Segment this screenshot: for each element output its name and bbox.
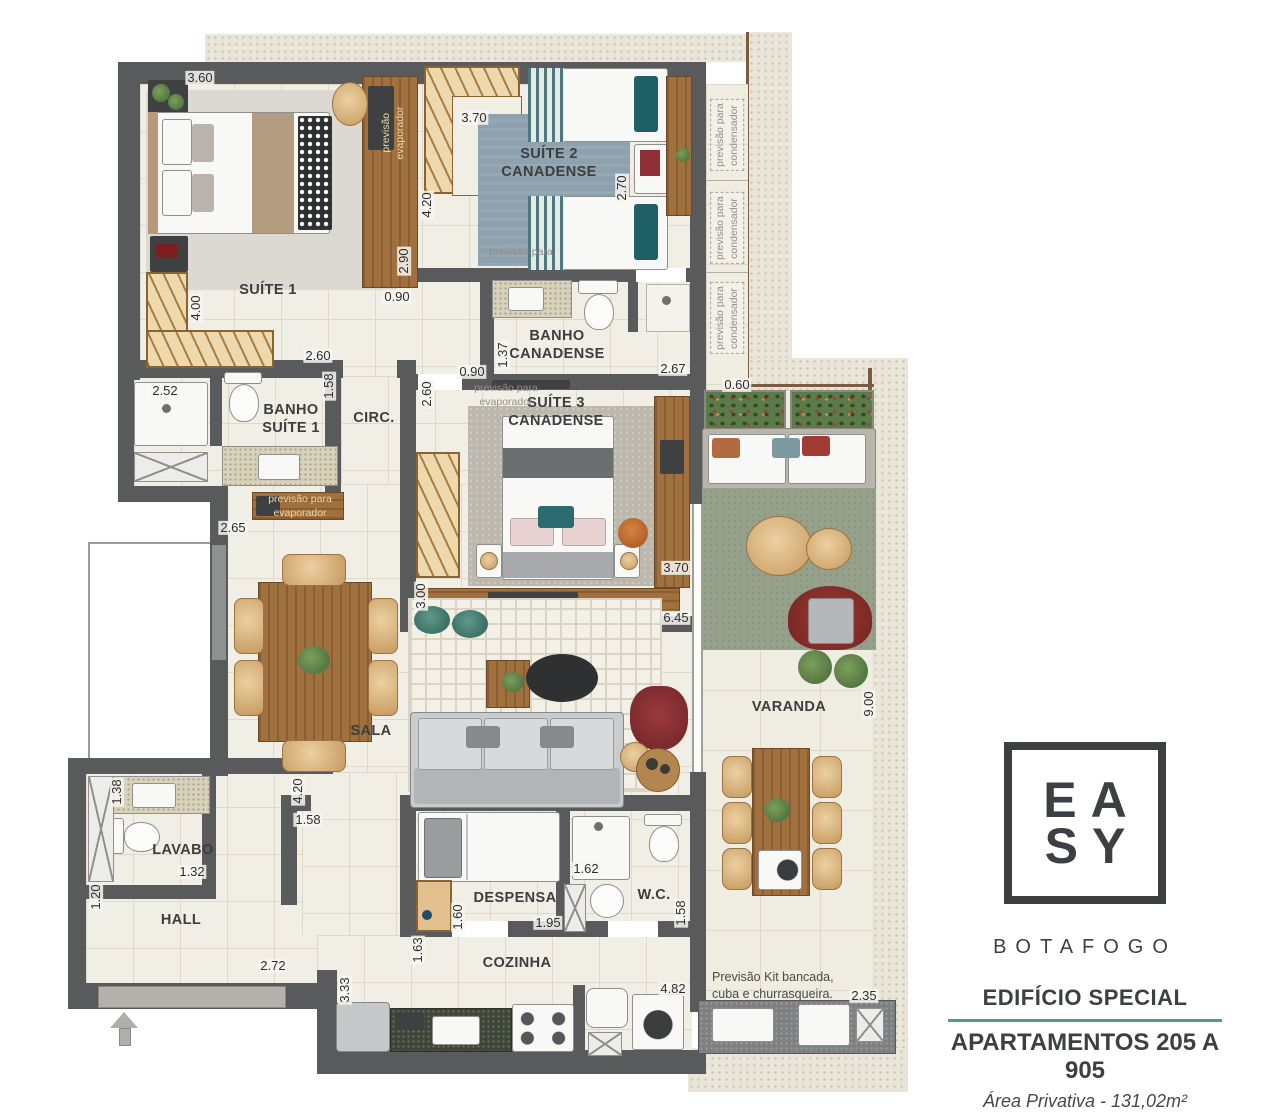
plant-centerpiece xyxy=(298,646,330,674)
planter-box xyxy=(704,390,786,430)
dim: 1.63 xyxy=(411,935,425,964)
entry-arrow-icon xyxy=(110,1012,138,1028)
dim: 1.58 xyxy=(674,898,688,927)
dim: 1.32 xyxy=(177,865,206,879)
round-sink xyxy=(590,884,624,918)
dim: 3.70 xyxy=(459,111,488,125)
wall xyxy=(573,985,585,1059)
room-label-sala: SALA xyxy=(350,722,391,740)
shower-head xyxy=(662,296,671,305)
dim: 0.90 xyxy=(382,290,411,304)
lounge-cushion xyxy=(808,598,854,644)
dim: 2.35 xyxy=(849,989,878,1003)
door-opening xyxy=(608,921,658,937)
void-adjacent-unit xyxy=(88,542,214,768)
pouf-teal xyxy=(452,610,488,638)
border-right-lower xyxy=(872,358,908,1090)
coffee-table-dark xyxy=(526,654,598,702)
wall-light-section xyxy=(212,545,226,660)
annotation-condenser-1: previsão para condensador xyxy=(710,99,744,171)
planter-box xyxy=(790,390,874,430)
brand-building: EDIFÍCIO SPECIAL xyxy=(948,985,1222,1011)
dim: 0.60 xyxy=(722,378,751,392)
dining-chair xyxy=(368,660,398,716)
dim: 4.82 xyxy=(658,982,687,996)
armchair-red xyxy=(630,686,688,750)
pillow-teal xyxy=(634,76,658,132)
pillow-teal xyxy=(538,506,574,528)
side-panel xyxy=(666,76,692,216)
dim: 1.20 xyxy=(89,882,103,911)
bancada-sink xyxy=(712,1008,774,1042)
wall xyxy=(690,62,706,392)
sink xyxy=(258,454,300,480)
room-label-wc: W.C. xyxy=(637,886,670,904)
dim: 1.95 xyxy=(533,916,562,930)
wall xyxy=(317,1050,706,1074)
plant xyxy=(676,148,690,162)
lamp xyxy=(620,552,638,570)
wall xyxy=(400,795,416,937)
plant xyxy=(502,672,524,692)
dim: 2.60 xyxy=(420,379,434,408)
kitchen-sink xyxy=(432,1016,480,1045)
shaft xyxy=(134,452,208,482)
annotation-evaporator-suite3: previsão para evaporador xyxy=(474,381,538,409)
decor xyxy=(660,764,670,774)
pillow xyxy=(162,119,192,165)
room-label-cozinha: COZINHA xyxy=(483,954,552,972)
divider xyxy=(706,272,748,273)
dining-chair xyxy=(812,848,842,890)
dim: 4.00 xyxy=(189,293,203,322)
dim: 3.60 xyxy=(185,71,214,85)
pillow-rust xyxy=(712,438,740,458)
plant-centerpiece xyxy=(764,798,790,822)
dim: 1.37 xyxy=(496,340,510,369)
bancada-tray xyxy=(798,1004,850,1046)
laundry-tank xyxy=(586,988,628,1028)
sink xyxy=(132,783,176,808)
dining-chair xyxy=(812,802,842,844)
dining-chair xyxy=(722,802,752,844)
annotation-kit-bancada: Previsão Kit bancada, cuba e churrasquei… xyxy=(712,969,834,1003)
pillow-gray xyxy=(424,818,462,878)
border-top xyxy=(205,34,790,62)
brand-apartments: APARTAMENTOS 205 A 905 xyxy=(948,1029,1222,1085)
room-label-suite-1: SUÍTE 1 xyxy=(239,281,297,299)
door-opening xyxy=(636,268,686,282)
dim: 2.70 xyxy=(615,173,629,202)
pouf xyxy=(806,528,852,570)
wall xyxy=(68,758,86,1009)
room-label-banho-canadense: BANHO CANADENSE xyxy=(509,327,604,363)
dim: 4.20 xyxy=(420,190,434,219)
dim: 4.20 xyxy=(291,776,305,805)
dim: 1.60 xyxy=(451,902,465,931)
dining-chair xyxy=(368,598,398,654)
plant xyxy=(168,94,184,110)
easy-logo-line2: SY xyxy=(1045,823,1140,869)
annotation-evaporator-suite1: previsão evaporador xyxy=(379,106,407,159)
dim: 9.00 xyxy=(862,689,876,718)
annotation-condenser-2: previsão para condensador xyxy=(710,192,744,264)
dim: 6.45 xyxy=(661,611,690,625)
dim: 2.65 xyxy=(218,521,247,535)
bed-bench xyxy=(298,116,332,230)
entry-arrow-stem xyxy=(119,1028,131,1046)
pillow-teal xyxy=(634,204,658,260)
cushion xyxy=(192,124,214,162)
dim: 1.58 xyxy=(293,813,322,827)
pillow-red xyxy=(802,436,830,456)
brand-city: BOTAFOGO xyxy=(948,936,1222,959)
decor xyxy=(646,758,658,770)
closet xyxy=(416,452,460,578)
shower xyxy=(646,284,690,332)
tv xyxy=(660,440,684,474)
dim: 2.60 xyxy=(303,349,332,363)
bed-fold xyxy=(466,814,468,880)
plant xyxy=(798,650,832,684)
washer xyxy=(632,994,684,1050)
toilet xyxy=(584,294,614,330)
dim: 1.38 xyxy=(110,777,124,806)
grill-tray xyxy=(758,850,802,890)
cooktop-items xyxy=(396,1012,424,1030)
closet xyxy=(146,330,274,368)
dim: 3.33 xyxy=(338,975,352,1004)
sink xyxy=(508,287,544,311)
room-label-suite-2: SUÍTE 2 CANADENSE xyxy=(501,145,596,181)
room-label-hall: HALL xyxy=(161,911,201,929)
shower-head xyxy=(162,404,171,413)
room-label-lavabo: LAVABO xyxy=(152,841,213,859)
shaft xyxy=(856,1008,884,1042)
pouf-orange xyxy=(618,518,648,548)
dim: 1.58 xyxy=(322,371,336,400)
entry-threshold[interactable] xyxy=(98,986,286,1008)
wall xyxy=(210,378,222,446)
divider xyxy=(706,180,748,181)
bed-foot xyxy=(503,552,613,578)
shaft xyxy=(588,1032,622,1056)
brand-divider xyxy=(948,1019,1222,1022)
annotation-evaporator-shelf: previsão para evaporador xyxy=(268,492,332,520)
room-label-varanda: VARANDA xyxy=(752,698,826,716)
dining-chair xyxy=(234,660,264,716)
pantry-cabinet xyxy=(416,880,452,932)
dining-chair xyxy=(722,848,752,890)
chair xyxy=(332,82,368,126)
wall xyxy=(118,62,140,380)
kettle xyxy=(422,910,432,920)
room-label-banho-suite-1: BANHO SUÍTE 1 xyxy=(262,401,320,437)
shaft xyxy=(564,884,586,932)
sofa-pillow xyxy=(466,726,500,748)
side-table xyxy=(636,748,680,792)
clock xyxy=(156,244,178,258)
plant xyxy=(834,654,868,688)
dim: 2.67 xyxy=(658,362,687,376)
room-label-circ: CIRC. xyxy=(353,409,394,427)
cushion xyxy=(192,174,214,212)
stove xyxy=(512,1004,574,1052)
dim: 2.90 xyxy=(397,246,411,275)
dim: 3.70 xyxy=(661,561,690,575)
dim: 1.62 xyxy=(571,862,600,876)
border-bottom xyxy=(688,1048,908,1092)
pillow xyxy=(162,170,192,216)
pillow-pattern xyxy=(772,438,800,458)
dim: 2.72 xyxy=(258,959,287,973)
wall xyxy=(118,378,134,502)
pouf xyxy=(746,516,812,576)
bed-blanket xyxy=(503,448,613,478)
headboard xyxy=(148,112,158,234)
floor-plan-canvas: SUÍTE 1SUÍTE 2 CANADENSEBANHO CANADENSEB… xyxy=(0,0,1280,1118)
sofa-back xyxy=(414,768,620,804)
dim: 2.52 xyxy=(150,384,179,398)
easy-logo: EA SY xyxy=(1004,742,1166,904)
wall xyxy=(628,282,638,332)
room-label-despensa: DESPENSA xyxy=(474,889,557,907)
dining-chair xyxy=(282,554,346,586)
lamp xyxy=(480,552,498,570)
wall xyxy=(86,885,216,899)
dining-chair xyxy=(234,598,264,654)
dining-chair xyxy=(812,756,842,798)
sofa-pillow xyxy=(540,726,574,748)
toilet xyxy=(229,384,259,422)
easy-logo-line1: EA xyxy=(1043,777,1140,823)
annotation-condenser-3: previsão para condensador xyxy=(710,282,744,354)
toilet-tank xyxy=(644,814,682,826)
toilet xyxy=(649,826,679,862)
brand-panel: EA SY BOTAFOGO EDIFÍCIO SPECIAL APARTAME… xyxy=(948,742,1222,1112)
bed-throw xyxy=(528,68,564,142)
fridge xyxy=(336,1002,390,1052)
dining-chair xyxy=(722,756,752,798)
shower-head xyxy=(594,822,603,831)
dining-chair xyxy=(282,740,346,772)
toilet-tank xyxy=(224,372,262,384)
bed-runner xyxy=(252,113,294,233)
brand-area: Área Privativa - 131,02m² xyxy=(948,1091,1222,1112)
decor xyxy=(640,150,660,176)
dim: 3.00 xyxy=(414,581,428,610)
border-right-upper xyxy=(748,32,792,392)
annotation-evaporator-suite2: previsão para xyxy=(489,245,553,259)
toilet-tank xyxy=(578,280,618,294)
dim: 0.90 xyxy=(457,365,486,379)
